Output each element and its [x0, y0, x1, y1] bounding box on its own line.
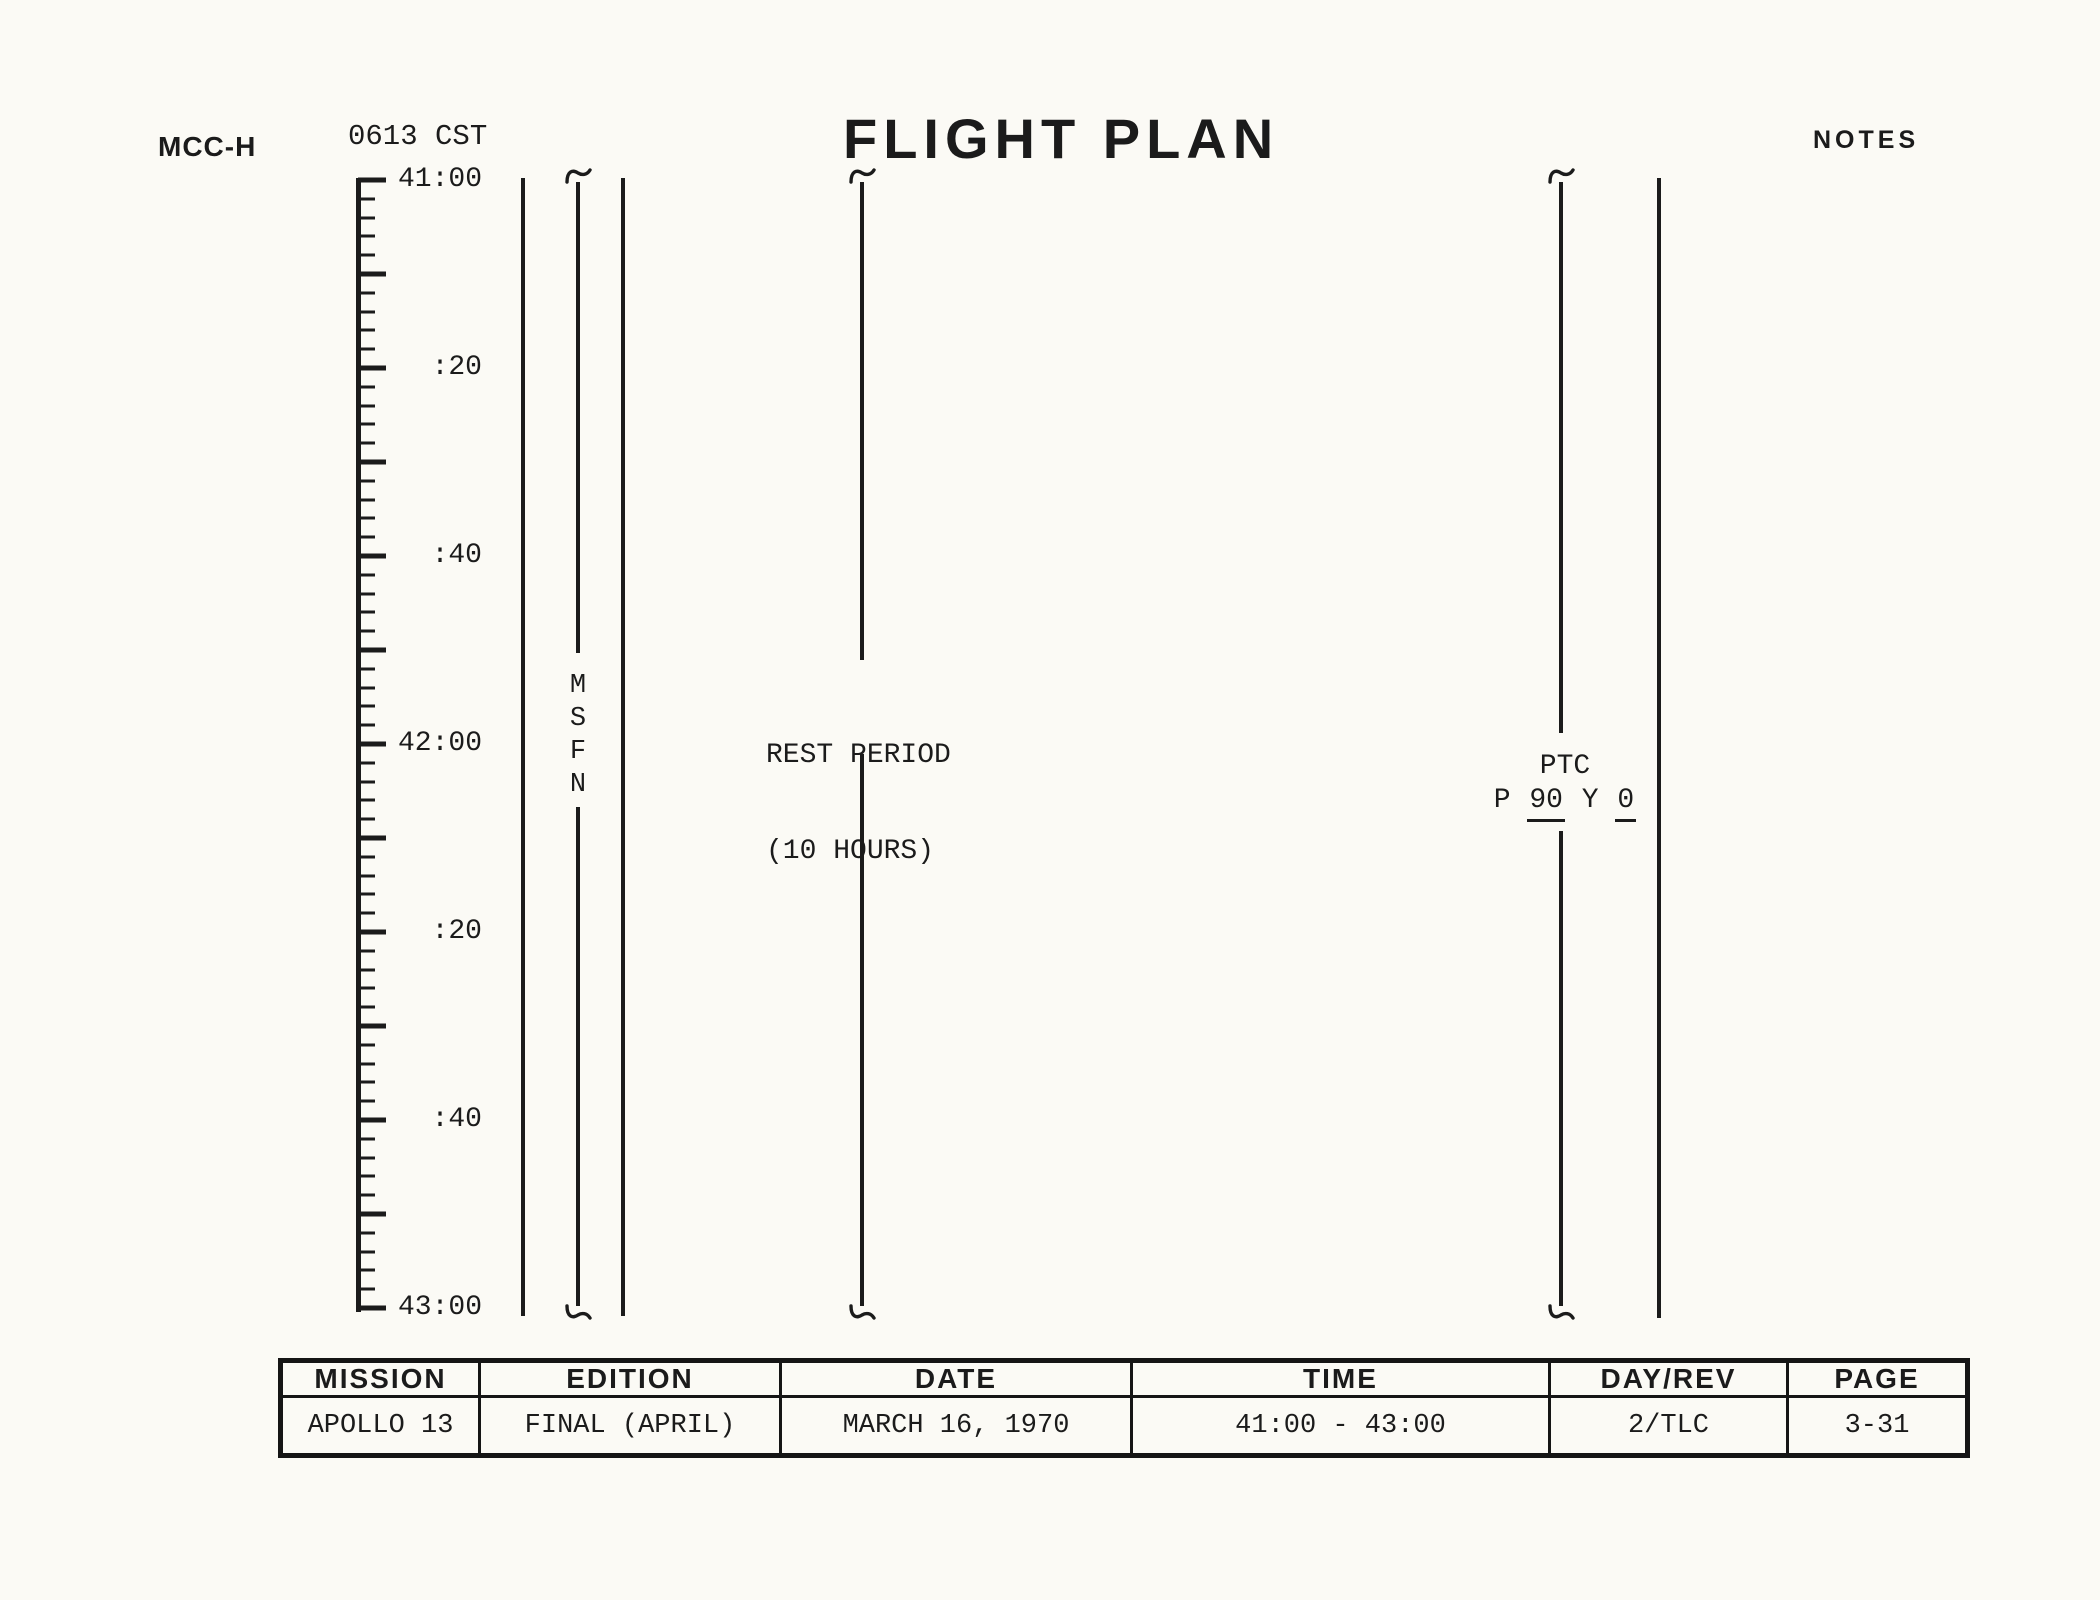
- squiggle-arrowhead-bottom-icon: [1546, 1304, 1576, 1322]
- ruler-minor-tick: [358, 874, 375, 877]
- ruler-minor-tick: [358, 724, 375, 727]
- ruler-major-tick: [358, 178, 386, 183]
- ruler-minor-tick: [358, 818, 375, 821]
- ruler-minor-tick: [358, 197, 375, 200]
- squiggle-arrowhead-top-icon: [1546, 166, 1576, 184]
- ruler-major-tick: [358, 1212, 386, 1217]
- ptc-band-right-line: [1657, 178, 1661, 1318]
- ruler-time-label: 42:00: [386, 730, 482, 758]
- ptc-yaw-label: Y: [1582, 785, 1599, 816]
- ruler-major-tick: [358, 836, 386, 841]
- ruler-minor-tick: [358, 348, 375, 351]
- edition-value: FINAL (APRIL): [478, 1398, 779, 1453]
- squiggle-arrowhead-top-icon: [847, 166, 877, 184]
- ptc-arrow-line-bottom: [1559, 831, 1563, 1306]
- ruler-major-tick: [358, 1024, 386, 1029]
- ruler-minor-tick: [358, 291, 375, 294]
- mission-value: APOLLO 13: [283, 1398, 478, 1453]
- ruler-minor-tick: [358, 423, 375, 426]
- rest-period-line1: REST PERIOD: [766, 740, 951, 772]
- notes-column-label: NOTES: [1813, 126, 1919, 155]
- ruler-minor-tick: [358, 1100, 375, 1103]
- ruler-minor-tick: [358, 705, 375, 708]
- day-rev-header: DAY/REV: [1548, 1363, 1786, 1398]
- squiggle-arrowhead-top-icon: [563, 166, 593, 184]
- ruler-major-tick: [358, 366, 386, 371]
- ptc-title: PTC: [1465, 750, 1665, 783]
- flight-plan-page: { "header": { "site": "MCC-H", "cst_time…: [0, 0, 2100, 1600]
- ruler-major-tick: [358, 1118, 386, 1123]
- time-value: 41:00 - 43:00: [1130, 1398, 1548, 1453]
- ruler-time-label: 41:00: [386, 166, 482, 194]
- msfn-arrow-line-bottom: [576, 807, 580, 1306]
- ruler-minor-tick: [358, 498, 375, 501]
- ruler-major-tick: [358, 648, 386, 653]
- ruler-minor-tick: [358, 1137, 375, 1140]
- ruler-minor-tick: [358, 1062, 375, 1065]
- ruler-minor-tick: [358, 1250, 375, 1253]
- ruler-time-label: :20: [386, 918, 482, 946]
- ruler-time-label: :40: [386, 1106, 482, 1134]
- ruler-minor-tick: [358, 235, 375, 238]
- msfn-band-left-line: [521, 178, 525, 1316]
- ruler-minor-tick: [358, 517, 375, 520]
- squiggle-arrowhead-bottom-icon: [563, 1304, 593, 1322]
- ruler-minor-tick: [358, 573, 375, 576]
- ruler-minor-tick: [358, 254, 375, 257]
- mcc-h-label: MCC-H: [158, 131, 256, 163]
- rest-period-line2: (10 HOURS): [766, 836, 951, 868]
- ruler-major-tick: [358, 460, 386, 465]
- ruler-minor-tick: [358, 1269, 375, 1272]
- ruler-minor-tick: [358, 855, 375, 858]
- msfn-band-label: M S F N: [558, 670, 598, 802]
- ruler-minor-tick: [358, 216, 375, 219]
- ruler-minor-tick: [358, 592, 375, 595]
- ruler-minor-tick: [358, 442, 375, 445]
- ptc-pitch-value: 90: [1527, 785, 1565, 822]
- ruler-minor-tick: [358, 385, 375, 388]
- rest-period-label: REST PERIOD (10 HOURS): [766, 676, 951, 900]
- rest-arrow-line-top: [860, 182, 864, 660]
- page-header: PAGE: [1786, 1363, 1965, 1398]
- ruler-minor-tick: [358, 667, 375, 670]
- mission-header: MISSION: [283, 1363, 478, 1398]
- time-header: TIME: [1130, 1363, 1548, 1398]
- ruler-time-label: :40: [386, 542, 482, 570]
- ruler-major-tick: [358, 930, 386, 935]
- ruler-minor-tick: [358, 329, 375, 332]
- msfn-letter: F: [558, 736, 598, 769]
- ruler-major-tick: [358, 554, 386, 559]
- page-title: FLIGHT PLAN: [843, 106, 1279, 171]
- ruler-minor-tick: [358, 686, 375, 689]
- ruler-minor-tick: [358, 893, 375, 896]
- ruler-major-tick: [358, 1306, 386, 1311]
- edition-header: EDITION: [478, 1363, 779, 1398]
- date-value: MARCH 16, 1970: [779, 1398, 1130, 1453]
- ruler-minor-tick: [358, 1231, 375, 1234]
- ruler-minor-tick: [358, 1043, 375, 1046]
- ruler-minor-tick: [358, 630, 375, 633]
- ptc-pitch-label: P: [1494, 785, 1511, 816]
- ruler-minor-tick: [358, 949, 375, 952]
- msfn-band-right-line: [621, 178, 625, 1316]
- ruler-minor-tick: [358, 536, 375, 539]
- ptc-arrow-line-top: [1559, 182, 1563, 733]
- ruler-minor-tick: [358, 1288, 375, 1291]
- day-rev-value: 2/TLC: [1548, 1398, 1786, 1453]
- date-header: DATE: [779, 1363, 1130, 1398]
- ptc-attitude-label: PTC P 90 Y 0: [1465, 750, 1665, 817]
- ruler-time-label: 43:00: [386, 1294, 482, 1322]
- ruler-minor-tick: [358, 1006, 375, 1009]
- ruler-time-label: :20: [386, 354, 482, 382]
- ruler-minor-tick: [358, 611, 375, 614]
- ruler-minor-tick: [358, 780, 375, 783]
- ptc-yaw-value: 0: [1615, 785, 1636, 822]
- ruler-minor-tick: [358, 968, 375, 971]
- msfn-arrow-line-top: [576, 182, 580, 653]
- ruler-minor-tick: [358, 799, 375, 802]
- ruler-minor-tick: [358, 1194, 375, 1197]
- ruler-minor-tick: [358, 404, 375, 407]
- page-value: 3-31: [1786, 1398, 1965, 1453]
- ruler-major-tick: [358, 742, 386, 747]
- mission-info-table: MISSION EDITION DATE TIME DAY/REV PAGE A…: [278, 1358, 1970, 1458]
- msfn-letter: S: [558, 703, 598, 736]
- ruler-minor-tick: [358, 1156, 375, 1159]
- ruler-minor-tick: [358, 987, 375, 990]
- ruler-minor-tick: [358, 310, 375, 313]
- ruler-major-tick: [358, 272, 386, 277]
- ptc-attitude-values: P 90 Y 0: [1465, 784, 1665, 817]
- ruler-minor-tick: [358, 1175, 375, 1178]
- ruler-minor-tick: [358, 912, 375, 915]
- ruler-minor-tick: [358, 1081, 375, 1084]
- msfn-letter: N: [558, 769, 598, 802]
- ruler-minor-tick: [358, 479, 375, 482]
- msfn-letter: M: [558, 670, 598, 703]
- ruler-minor-tick: [358, 761, 375, 764]
- squiggle-arrowhead-bottom-icon: [847, 1304, 877, 1322]
- cst-time-label: 0613 CST: [348, 120, 487, 153]
